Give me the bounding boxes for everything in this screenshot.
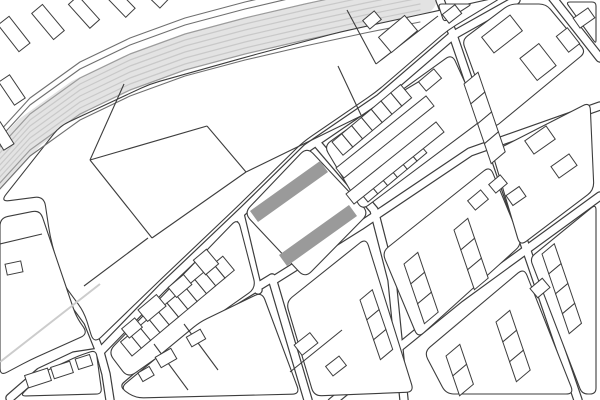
site-plan-map [0, 0, 600, 400]
building [0, 16, 30, 51]
map-canvas [0, 0, 600, 400]
building [32, 4, 65, 39]
building [105, 0, 135, 17]
building [68, 0, 99, 28]
building [140, 0, 168, 8]
building [0, 75, 25, 105]
